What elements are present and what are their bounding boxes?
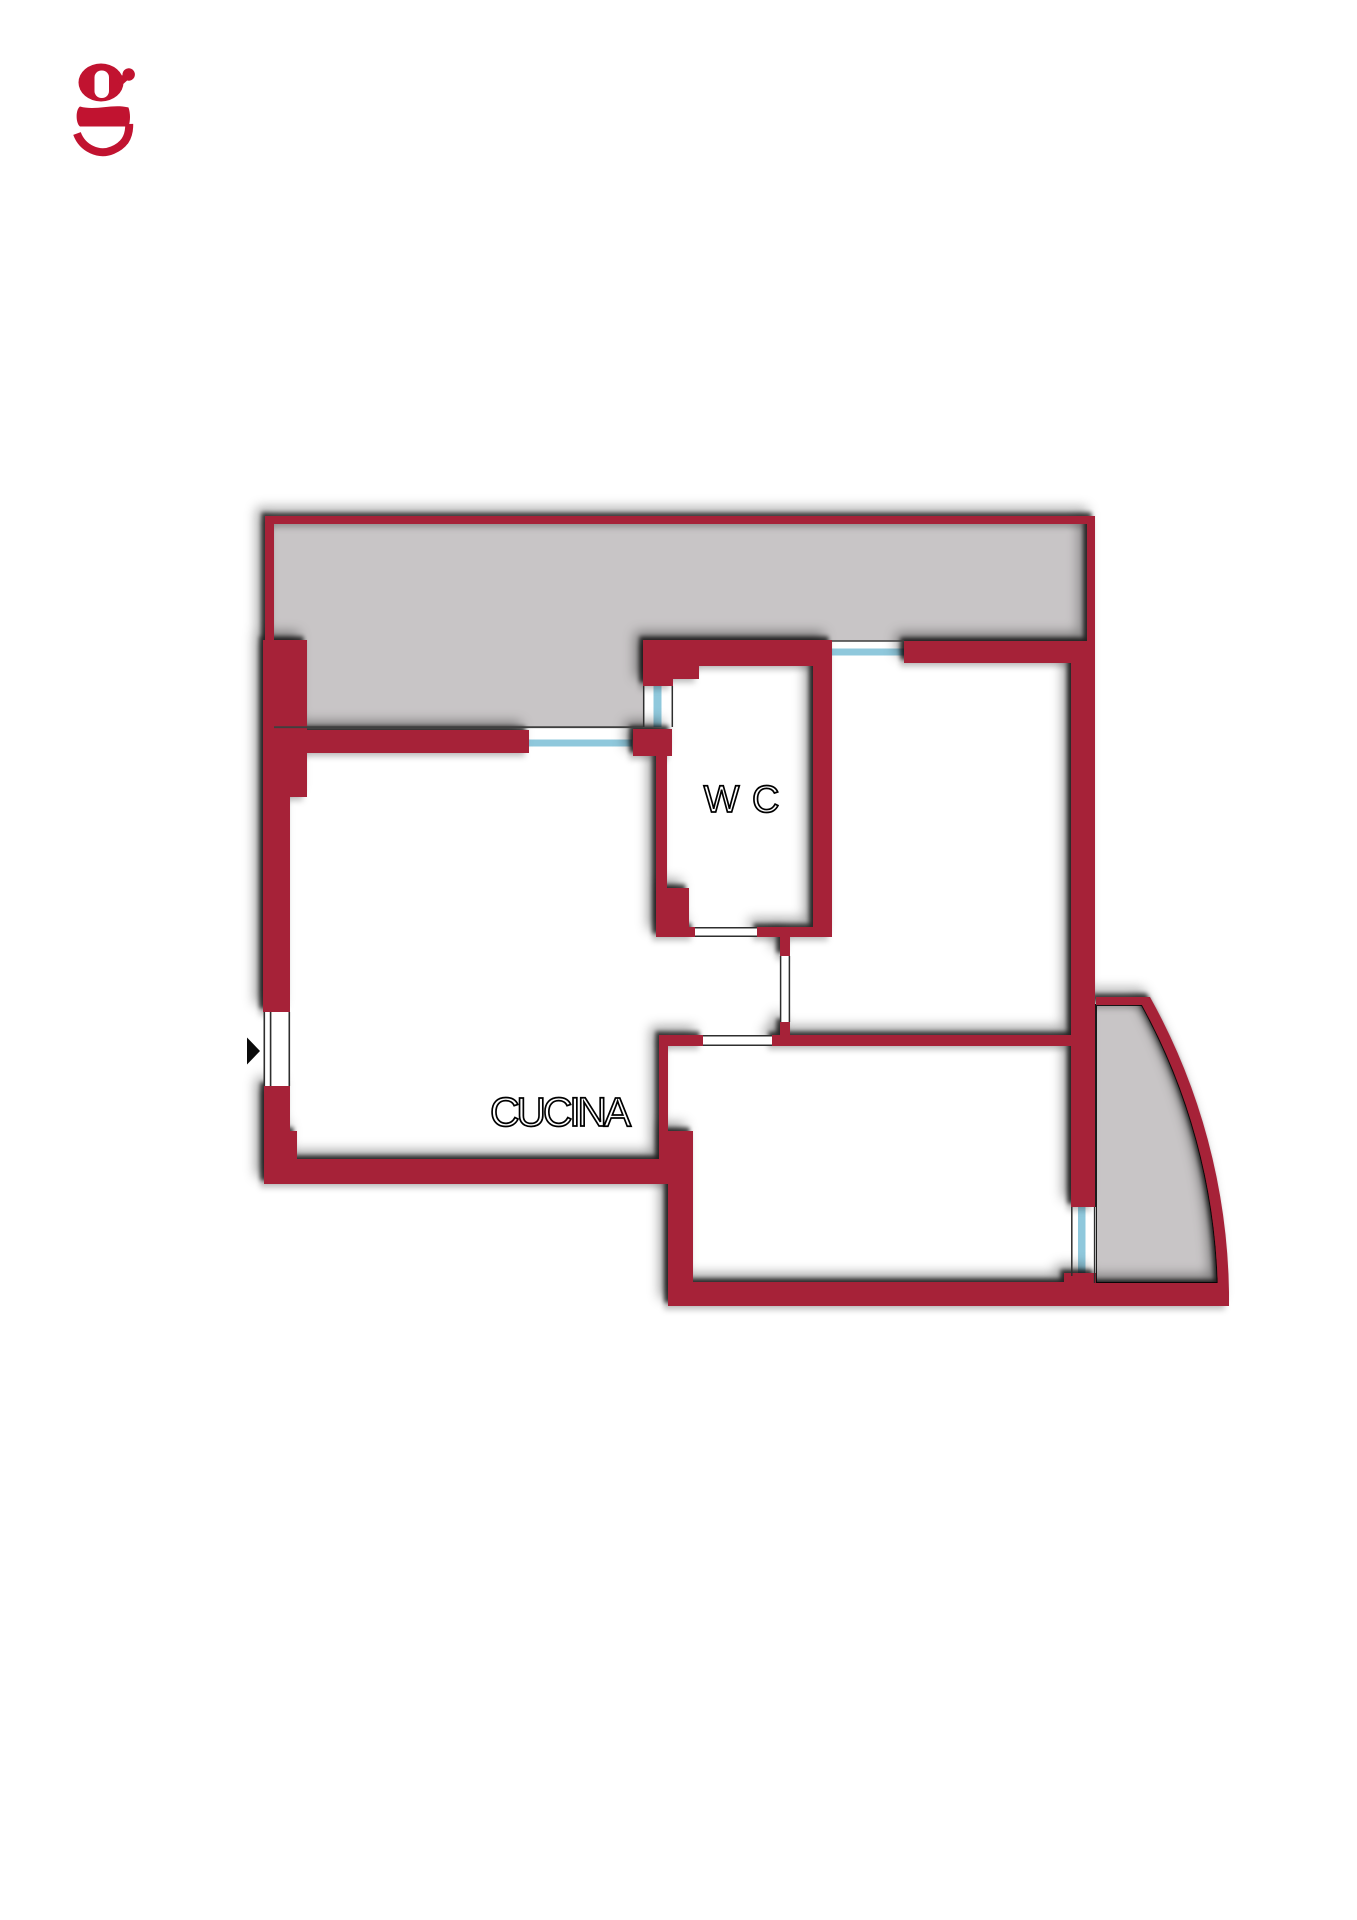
svg-text:W C: W C <box>704 779 781 821</box>
svg-text:CUCINA: CUCINA <box>490 1089 632 1135</box>
